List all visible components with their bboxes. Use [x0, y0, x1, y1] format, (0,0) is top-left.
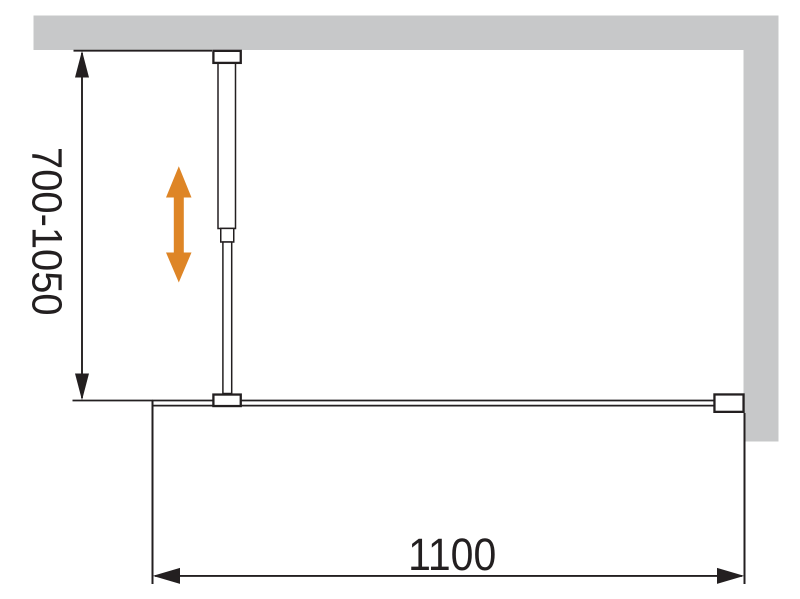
svg-text:700-1050: 700-1050 — [23, 147, 70, 316]
svg-text:1100: 1100 — [408, 530, 496, 580]
